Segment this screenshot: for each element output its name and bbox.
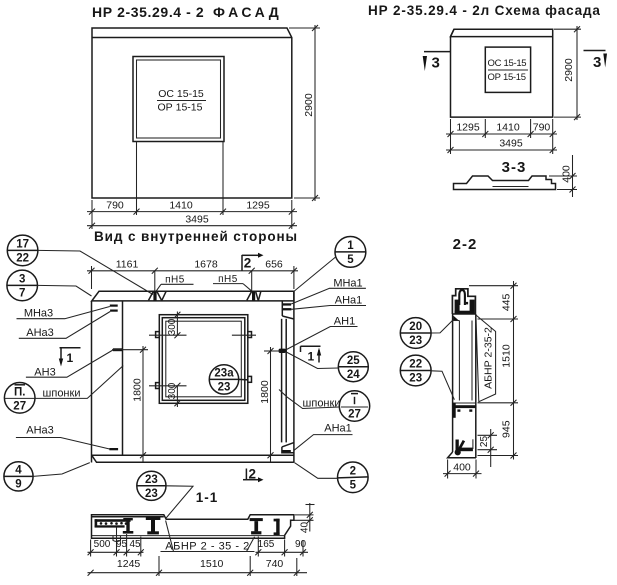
svg-text:945: 945: [501, 420, 513, 438]
svg-text:400: 400: [453, 462, 471, 474]
svg-text:7: 7: [19, 288, 25, 300]
svg-text:23: 23: [409, 373, 422, 385]
svg-text:1: 1: [308, 350, 315, 364]
svg-text:95: 95: [116, 539, 128, 550]
svg-text:шпонки: шпонки: [43, 388, 81, 400]
svg-text:22: 22: [16, 253, 29, 265]
svg-text:23: 23: [409, 335, 422, 347]
svg-text:1245: 1245: [117, 558, 141, 570]
svg-text:23: 23: [145, 488, 158, 500]
svg-text:3495: 3495: [499, 138, 523, 150]
svg-text:3: 3: [432, 55, 440, 72]
svg-text:1161: 1161: [116, 259, 139, 271]
svg-text:1800: 1800: [132, 378, 144, 402]
svg-text:ОС 15-15: ОС 15-15: [488, 58, 527, 69]
svg-text:1295: 1295: [456, 122, 480, 134]
svg-text:27: 27: [13, 401, 26, 413]
svg-text:3: 3: [19, 274, 25, 286]
svg-text:1295: 1295: [246, 200, 270, 212]
svg-text:45: 45: [129, 539, 141, 550]
svg-text:1: 1: [347, 240, 354, 252]
svg-text:1800: 1800: [259, 380, 271, 404]
svg-text:5: 5: [347, 254, 354, 266]
svg-text:МНа3: МНа3: [24, 308, 53, 320]
svg-text:АНа3: АНа3: [26, 327, 54, 339]
svg-text:40: 40: [300, 522, 311, 534]
svg-text:5: 5: [350, 480, 357, 492]
svg-text:АНа1: АНа1: [335, 295, 363, 307]
svg-text:2: 2: [350, 466, 356, 478]
svg-text:2900: 2900: [303, 93, 315, 117]
svg-text:24: 24: [347, 369, 360, 381]
svg-text:2: 2: [249, 467, 257, 482]
svg-text:АБНР 2-35-2: АБНР 2-35-2: [483, 327, 495, 389]
svg-text:2: 2: [244, 256, 252, 271]
svg-text:НР 2-35.29.4 - 2: НР 2-35.29.4 - 2: [92, 4, 204, 20]
svg-text:АН1: АН1: [334, 316, 355, 328]
svg-text:22: 22: [409, 359, 422, 371]
svg-text:1: 1: [67, 351, 74, 365]
svg-text:3495: 3495: [185, 214, 209, 226]
svg-text:1-1: 1-1: [196, 490, 219, 505]
svg-text:9: 9: [15, 479, 21, 491]
svg-text:Вид с внутренней стороны: Вид с внутренней стороны: [94, 229, 298, 244]
svg-text:25: 25: [479, 436, 490, 448]
svg-text:1678: 1678: [194, 259, 218, 271]
svg-text:3-3: 3-3: [502, 159, 527, 176]
svg-text:23а: 23а: [214, 368, 234, 380]
svg-text:1510: 1510: [200, 558, 224, 570]
svg-text:ОС 15-15: ОС 15-15: [158, 88, 204, 100]
svg-text:АНа1: АНа1: [324, 423, 352, 435]
svg-text:23: 23: [145, 474, 158, 486]
svg-text:2-2: 2-2: [453, 236, 478, 253]
svg-text:1410: 1410: [169, 200, 193, 212]
svg-text:790: 790: [533, 122, 551, 134]
svg-text:300: 300: [167, 318, 178, 335]
svg-text:1410: 1410: [496, 122, 520, 134]
svg-text:НР 2-35.29.4 - 2л Схема фасада: НР 2-35.29.4 - 2л Схема фасада: [368, 3, 601, 18]
svg-text:300: 300: [167, 382, 178, 399]
svg-text:90: 90: [295, 539, 307, 550]
svg-text:500: 500: [94, 539, 111, 550]
svg-text:656: 656: [265, 259, 283, 271]
svg-text:2900: 2900: [563, 58, 575, 82]
svg-text:400: 400: [561, 165, 573, 183]
svg-text:1510: 1510: [501, 344, 513, 368]
svg-text:АНа3: АНа3: [26, 425, 54, 437]
svg-text:740: 740: [266, 558, 284, 570]
svg-text:АБНР 2 - 35 - 2: АБНР 2 - 35 - 2: [165, 541, 249, 553]
svg-text:165: 165: [258, 539, 275, 550]
svg-text:ОР 15-15: ОР 15-15: [158, 102, 203, 114]
svg-text:4: 4: [15, 465, 22, 477]
svg-text:МНа1: МНа1: [333, 278, 362, 290]
svg-text:20: 20: [409, 321, 422, 333]
svg-text:ОР 15-15: ОР 15-15: [488, 72, 526, 83]
svg-text:790: 790: [106, 200, 124, 212]
svg-text:17: 17: [16, 239, 29, 251]
svg-text:445: 445: [501, 293, 513, 311]
svg-text:27: 27: [348, 409, 361, 421]
svg-text:25: 25: [347, 355, 360, 367]
svg-text:П.: П.: [14, 387, 25, 399]
svg-text:ФАСАД: ФАСАД: [213, 4, 282, 20]
svg-text:3: 3: [593, 54, 601, 71]
svg-text:23: 23: [218, 382, 231, 394]
